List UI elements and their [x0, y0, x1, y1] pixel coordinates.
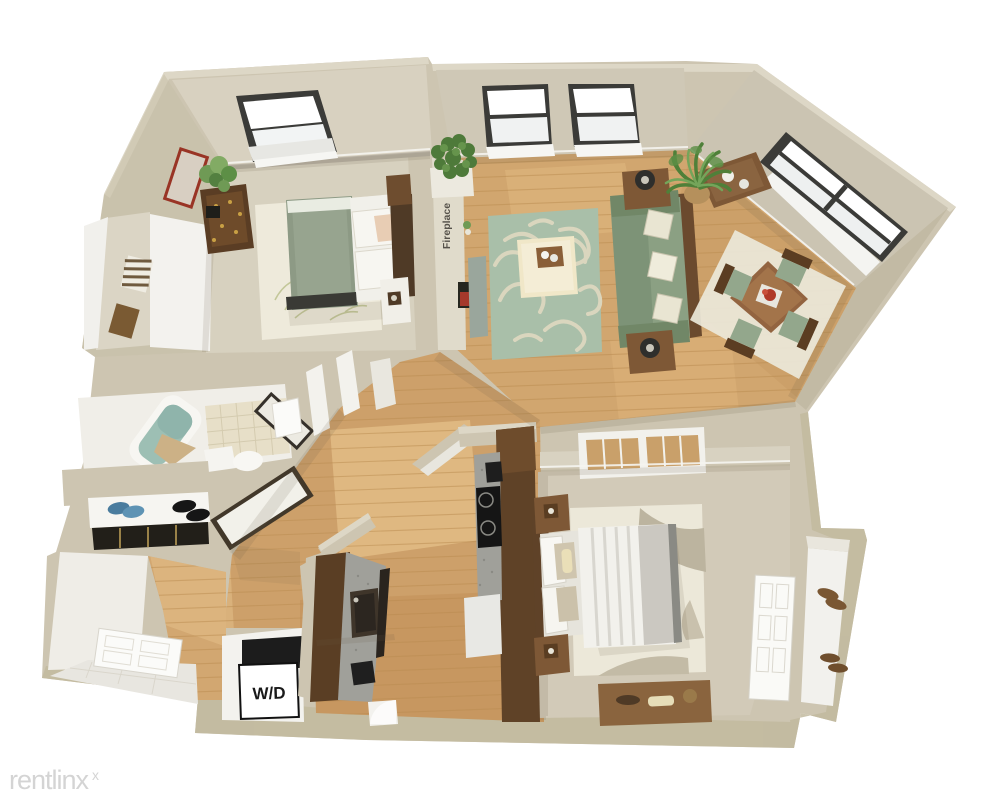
svg-text:W/D: W/D — [252, 683, 286, 703]
svg-text:rentlinx: rentlinx — [9, 765, 90, 795]
svg-text:x: x — [92, 767, 99, 783]
svg-text:Fireplace: Fireplace — [441, 203, 453, 249]
